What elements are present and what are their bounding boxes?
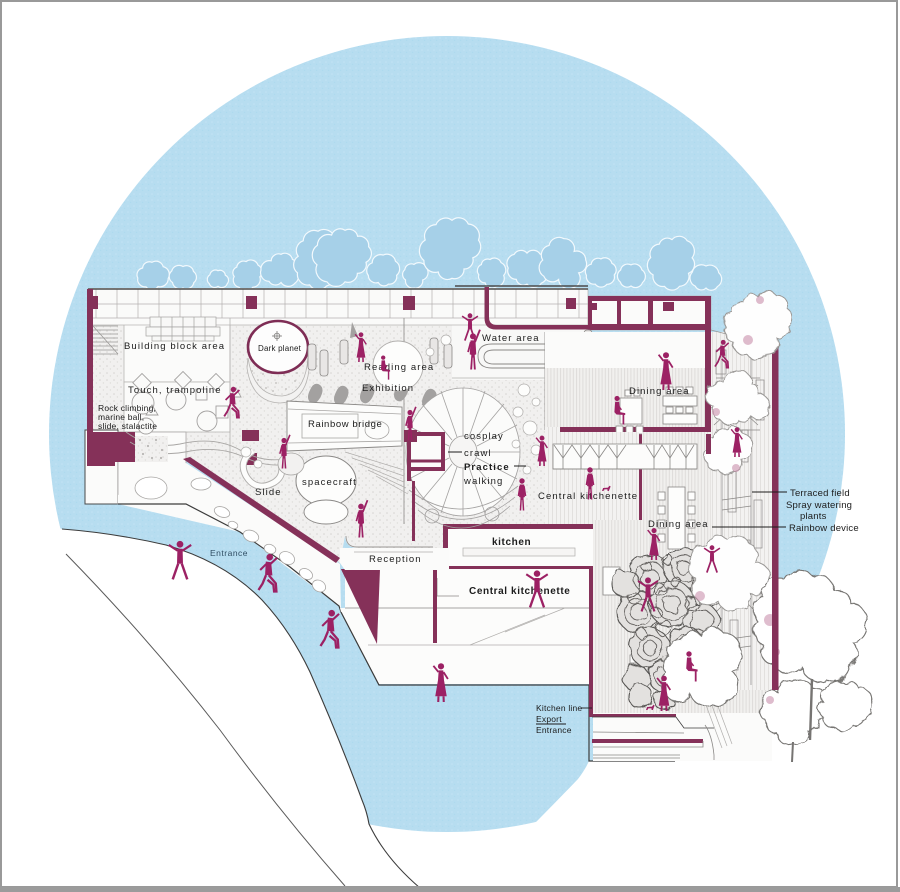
- svg-text:Reception: Reception: [369, 554, 422, 565]
- svg-text:Rainbow bridge: Rainbow bridge: [308, 419, 382, 430]
- svg-text:Terraced field: Terraced field: [790, 488, 850, 499]
- svg-text:Entrance: Entrance: [536, 725, 572, 735]
- svg-text:spacecraft: spacecraft: [302, 477, 357, 488]
- svg-text:Export: Export: [536, 714, 562, 724]
- svg-text:walking: walking: [463, 476, 503, 487]
- svg-text:Touch, trampoline: Touch, trampoline: [128, 385, 222, 396]
- svg-text:Kitchen line: Kitchen line: [536, 703, 582, 713]
- svg-text:Practice: Practice: [464, 462, 510, 473]
- svg-text:Rainbow device: Rainbow device: [789, 523, 859, 534]
- svg-text:plants: plants: [800, 511, 827, 522]
- svg-text:Dark planet: Dark planet: [258, 344, 302, 353]
- svg-text:crawl: crawl: [464, 448, 492, 459]
- svg-text:Central kitchenette: Central kitchenette: [469, 586, 570, 597]
- svg-text:Spray watering: Spray watering: [786, 500, 852, 511]
- svg-text:Entrance: Entrance: [210, 548, 248, 558]
- svg-text:kitchen: kitchen: [492, 537, 531, 548]
- svg-text:Exhibition: Exhibition: [362, 383, 414, 394]
- svg-text:Water area: Water area: [482, 333, 540, 344]
- svg-text:Building block area: Building block area: [124, 341, 225, 352]
- svg-text:Dining area: Dining area: [648, 519, 709, 530]
- svg-text:cosplay: cosplay: [464, 431, 504, 442]
- svg-text:Slide: Slide: [255, 487, 282, 498]
- svg-text:Dining area: Dining area: [629, 386, 690, 397]
- svg-text:slide, stalactite: slide, stalactite: [98, 421, 157, 431]
- svg-text:Reading area: Reading area: [364, 362, 434, 373]
